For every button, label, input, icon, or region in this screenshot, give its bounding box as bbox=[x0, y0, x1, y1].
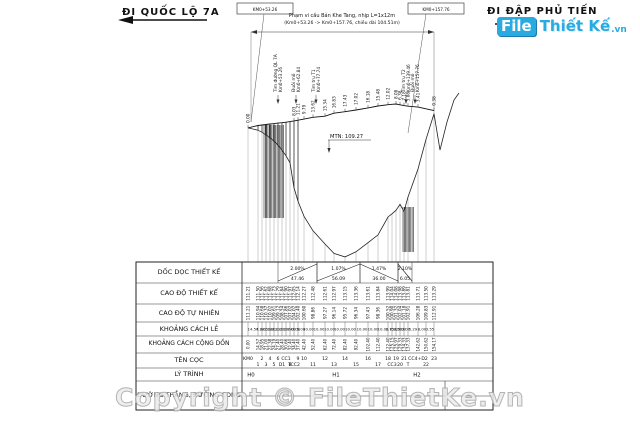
svg-text:14: 14 bbox=[342, 356, 348, 362]
svg-text:D1: D1 bbox=[279, 362, 286, 368]
svg-text:2: 2 bbox=[261, 356, 264, 362]
svg-text:MTN: 109.27: MTN: 109.27 bbox=[330, 134, 363, 140]
svg-text:H1: H1 bbox=[332, 373, 339, 379]
svg-text:(Km0+53.26 -> Km0+157.76, chiề: (Km0+53.26 -> Km0+157.76, chiều dài 104.… bbox=[284, 18, 400, 26]
svg-text:102.91: 102.91 bbox=[406, 305, 411, 320]
svg-text:23: 23 bbox=[431, 356, 437, 362]
filethietke-logo: File Thiết Kế .vn bbox=[497, 17, 627, 36]
svg-text:96.14: 96.14 bbox=[332, 307, 337, 319]
svg-text:5.29: 5.29 bbox=[409, 327, 418, 332]
svg-text:113.81: 113.81 bbox=[406, 286, 411, 301]
svg-text:9.79: 9.79 bbox=[301, 104, 306, 114]
svg-text:0.38: 0.38 bbox=[431, 96, 436, 106]
svg-text:KM0: KM0 bbox=[243, 356, 253, 362]
logo-vn-text: .vn bbox=[611, 24, 627, 36]
svg-text:97.27: 97.27 bbox=[323, 307, 328, 319]
svg-text:150.62: 150.62 bbox=[424, 337, 429, 351]
svg-text:0.00: 0.00 bbox=[246, 340, 251, 349]
row-label-ly-trinh: LÝ TRÌNH bbox=[136, 369, 242, 379]
km-mark-row: H0H1H2 bbox=[247, 373, 420, 379]
svg-text:10.00: 10.00 bbox=[334, 327, 345, 332]
svg-text:113.61: 113.61 bbox=[366, 286, 371, 301]
svg-text:112.14: 112.14 bbox=[296, 286, 301, 301]
svg-text:113.36: 113.36 bbox=[354, 286, 359, 301]
svg-text:17: 17 bbox=[375, 362, 381, 368]
row-label-cao-do-tn: CAO ĐỘ TỰ NHIÊN bbox=[136, 308, 242, 318]
natural-elevation-row: 111.21110.94110.68110.37110.02109.61109.… bbox=[246, 305, 437, 320]
svg-text:15.48: 15.48 bbox=[375, 89, 380, 101]
svg-text:82.40: 82.40 bbox=[343, 338, 348, 350]
svg-text:12.02: 12.02 bbox=[385, 87, 390, 99]
svg-text:42.40: 42.40 bbox=[302, 338, 307, 350]
right-road-label: ĐI ĐẬP PHỦ TIẾN bbox=[487, 6, 598, 17]
svg-text:18: 18 bbox=[385, 356, 391, 362]
svg-text:2.10%: 2.10% bbox=[398, 266, 413, 272]
svg-text:10: 10 bbox=[301, 356, 307, 362]
svg-text:62.40: 62.40 bbox=[323, 338, 328, 350]
svg-text:CC4+D2: CC4+D2 bbox=[408, 356, 428, 362]
svg-text:95.72: 95.72 bbox=[343, 307, 348, 319]
cumulative-distance-row: 0.0014.5718.9521.0022.3824.1927.4028.403… bbox=[246, 337, 437, 351]
svg-text:142.62: 142.62 bbox=[416, 337, 421, 351]
svg-text:H0: H0 bbox=[247, 373, 255, 379]
svg-text:102.40: 102.40 bbox=[366, 337, 371, 351]
svg-text:10.00: 10.00 bbox=[357, 327, 368, 332]
svg-text:12: 12 bbox=[322, 356, 328, 362]
svg-text:Km0+53.26: Km0+53.26 bbox=[278, 67, 283, 92]
svg-text:CC3: CC3 bbox=[387, 362, 396, 368]
water-level-label: MTN: 109.27 bbox=[327, 134, 371, 153]
svg-text:112.97: 112.97 bbox=[332, 286, 337, 301]
svg-text:112.40: 112.40 bbox=[376, 337, 381, 351]
svg-text:1.47%: 1.47% bbox=[372, 266, 387, 272]
svg-text:KM0+53.26: KM0+53.26 bbox=[253, 7, 278, 12]
svg-text:15: 15 bbox=[353, 362, 359, 368]
copyright-watermark: Copyright © FileThietKe.vn bbox=[0, 383, 640, 412]
logo-file-icon: File bbox=[497, 17, 536, 36]
svg-text:97.43: 97.43 bbox=[366, 307, 371, 319]
svg-text:Km0+77.74: Km0+77.74 bbox=[316, 67, 321, 92]
svg-text:98.36: 98.36 bbox=[376, 307, 381, 319]
stake-name-row: KM0123456D1CC18TCC29101112131415161718CC… bbox=[243, 356, 437, 368]
svg-text:KM0+157.76: KM0+157.76 bbox=[422, 7, 450, 12]
svg-text:6: 6 bbox=[277, 356, 280, 362]
svg-text:22: 22 bbox=[423, 362, 429, 368]
svg-text:10.00: 10.00 bbox=[345, 327, 356, 332]
svg-text:3.55: 3.55 bbox=[426, 327, 435, 332]
row-label-kc-le: KHOẢNG CÁCH LẺ bbox=[136, 324, 242, 334]
design-grade-line bbox=[248, 104, 434, 128]
row-label-kc-cong-don: KHOẢNG CÁCH CỘNG DỒN bbox=[136, 339, 242, 349]
svg-text:106.28: 106.28 bbox=[416, 305, 421, 320]
svg-text:11.21: 11.21 bbox=[295, 103, 300, 115]
svg-text:13.62: 13.62 bbox=[310, 100, 315, 112]
svg-text:100.60: 100.60 bbox=[302, 305, 307, 320]
svg-text:36.00: 36.00 bbox=[372, 276, 385, 282]
svg-text:T: T bbox=[406, 362, 410, 368]
row-label-doc-doc: DỐC DỌC THIẾT KẾ bbox=[136, 267, 242, 277]
svg-text:9: 9 bbox=[297, 356, 300, 362]
svg-text:TCC2: TCC2 bbox=[287, 362, 300, 368]
svg-text:154.17: 154.17 bbox=[432, 337, 437, 351]
row-label-ten-coc: TÊN CỌC bbox=[136, 355, 242, 365]
svg-text:Km0+157.76: Km0+157.76 bbox=[415, 64, 420, 92]
svg-text:112.27: 112.27 bbox=[302, 286, 307, 301]
svg-text:1: 1 bbox=[257, 362, 260, 368]
svg-text:H2: H2 bbox=[413, 373, 420, 379]
svg-text:47.46: 47.46 bbox=[291, 276, 304, 282]
height-labels: 0.008.0311.219.7913.6215.3416.8317.4317.… bbox=[245, 87, 436, 127]
slope-row: 2.00%47.461.07%56.091.47%36.002.10%6.05 bbox=[278, 262, 413, 283]
svg-text:111.21: 111.21 bbox=[246, 305, 251, 320]
svg-text:137.33: 137.33 bbox=[406, 337, 411, 351]
svg-text:113.84: 113.84 bbox=[376, 286, 381, 301]
svg-text:4: 4 bbox=[269, 356, 272, 362]
svg-text:72.40: 72.40 bbox=[332, 338, 337, 350]
svg-text:92.40: 92.40 bbox=[354, 338, 359, 350]
svg-text:16.83: 16.83 bbox=[331, 96, 336, 108]
svg-text:2.00%: 2.00% bbox=[290, 266, 305, 272]
svg-text:19: 19 bbox=[393, 356, 399, 362]
hatch-blocks bbox=[264, 125, 413, 252]
svg-text:52.40: 52.40 bbox=[311, 338, 316, 350]
svg-text:102.40: 102.40 bbox=[296, 305, 301, 320]
svg-text:111.21: 111.21 bbox=[246, 286, 251, 301]
design-elevation-row: 111.21111.50111.56111.62111.68111.73111.… bbox=[246, 286, 437, 301]
svg-text:15.34: 15.34 bbox=[322, 99, 327, 111]
svg-text:CC1: CC1 bbox=[281, 356, 290, 362]
drawing-sheet: KM0+53.26KM0+157.76Phạm vi cầu Bản Khe T… bbox=[0, 0, 640, 421]
svg-text:112.91: 112.91 bbox=[432, 305, 437, 320]
svg-text:113.50: 113.50 bbox=[424, 286, 429, 301]
svg-text:112.48: 112.48 bbox=[311, 286, 316, 301]
svg-text:17.43: 17.43 bbox=[342, 94, 347, 106]
svg-text:3: 3 bbox=[265, 362, 268, 368]
svg-text:13: 13 bbox=[331, 362, 337, 368]
svg-text:96.34: 96.34 bbox=[354, 307, 359, 319]
svg-text:5: 5 bbox=[273, 362, 276, 368]
svg-text:113.15: 113.15 bbox=[343, 286, 348, 301]
svg-text:98.86: 98.86 bbox=[311, 307, 316, 319]
left-road-label: ĐI QUỐC LỘ 7A bbox=[122, 7, 220, 18]
svg-text:113.29: 113.29 bbox=[432, 286, 437, 301]
svg-text:16: 16 bbox=[365, 356, 371, 362]
row-label-cao-do-tk: CAO ĐỘ THIẾT KẾ bbox=[136, 288, 242, 298]
svg-text:Phạm vi cầu Bản Khe Tang, nhịp: Phạm vi cầu Bản Khe Tang, nhịp L=1x12m bbox=[289, 11, 395, 19]
svg-text:56.09: 56.09 bbox=[332, 276, 345, 282]
svg-text:112.61: 112.61 bbox=[323, 286, 328, 301]
svg-text:113.71: 113.71 bbox=[416, 286, 421, 301]
profile-drawing-canvas: KM0+53.26KM0+157.76Phạm vi cầu Bản Khe T… bbox=[0, 0, 640, 421]
svg-text:1.07%: 1.07% bbox=[331, 266, 346, 272]
svg-text:6.05: 6.05 bbox=[400, 276, 410, 282]
svg-text:0.00: 0.00 bbox=[245, 113, 250, 123]
svg-text:Km0+62.84: Km0+62.84 bbox=[296, 67, 301, 92]
svg-text:20: 20 bbox=[397, 362, 403, 368]
svg-text:16.18: 16.18 bbox=[365, 91, 370, 103]
svg-text:11: 11 bbox=[310, 362, 316, 368]
svg-text:109.83: 109.83 bbox=[424, 305, 429, 320]
svg-text:17.02: 17.02 bbox=[353, 93, 358, 105]
partial-distance-row: 14.574.382.051.381.813.211.002.261.742.0… bbox=[248, 322, 435, 336]
logo-thietke-text: Thiết Kế bbox=[540, 17, 610, 36]
svg-text:21: 21 bbox=[401, 356, 407, 362]
svg-text:37.40: 37.40 bbox=[296, 338, 301, 350]
